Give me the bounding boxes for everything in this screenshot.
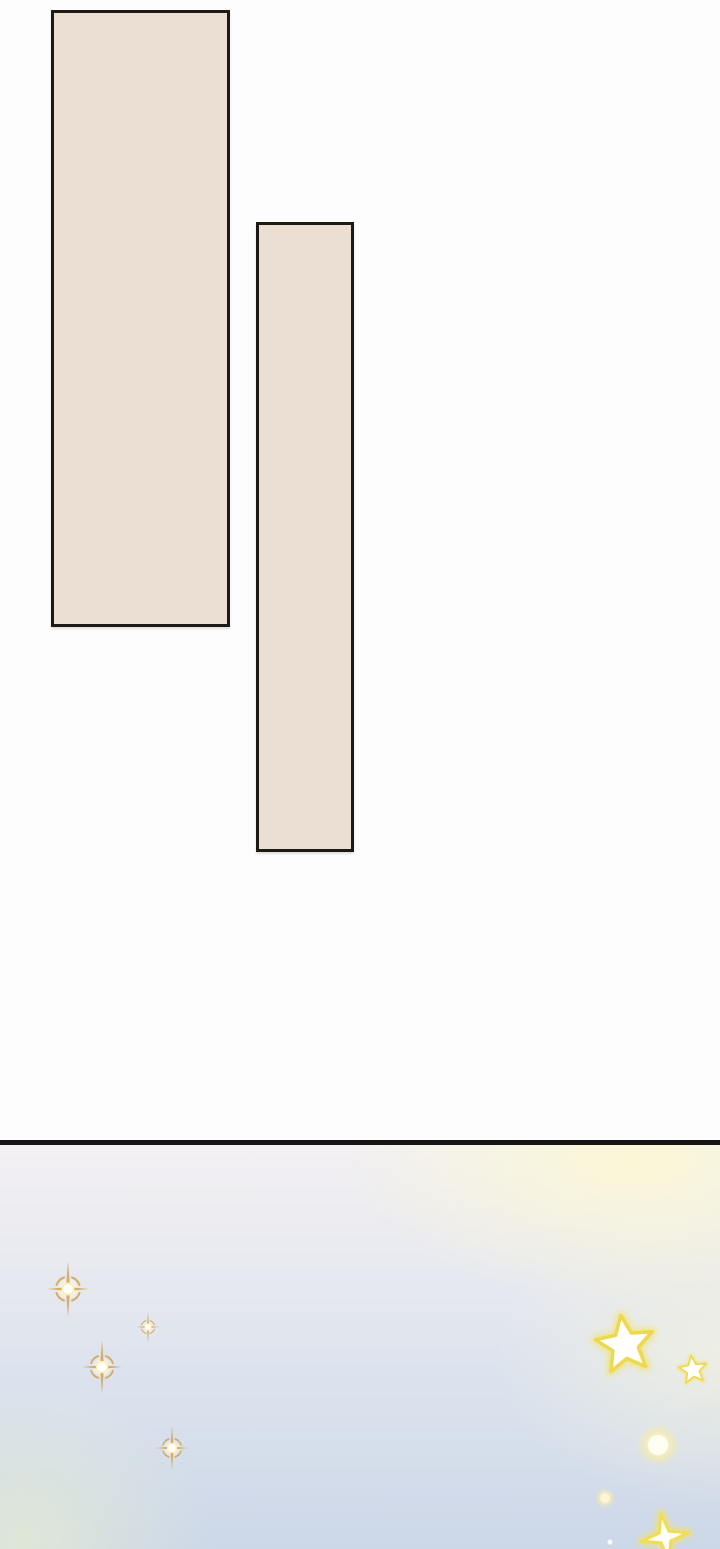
small-yellow-star <box>679 1356 706 1383</box>
comic-panel-2 <box>256 222 354 852</box>
small-glow-dot <box>595 1488 615 1508</box>
gold-cross-sparkle-small <box>136 1312 159 1343</box>
gold-cross-sparkle-medium <box>82 1340 122 1393</box>
gold-cross-sparkle-lower <box>156 1426 189 1470</box>
decorations <box>47 1261 706 1549</box>
comic-panel-1 <box>51 10 230 627</box>
gold-cross-sparkle-large <box>47 1261 89 1317</box>
webtoon-page <box>0 0 720 1549</box>
big-yellow-star <box>596 1315 653 1371</box>
sky-decorations-layer <box>0 1145 720 1549</box>
glowing-orb <box>636 1423 680 1467</box>
sky-scene <box>0 1145 720 1549</box>
tiny-white-dot <box>607 1539 612 1544</box>
four-point-star-clipped <box>641 1513 688 1549</box>
